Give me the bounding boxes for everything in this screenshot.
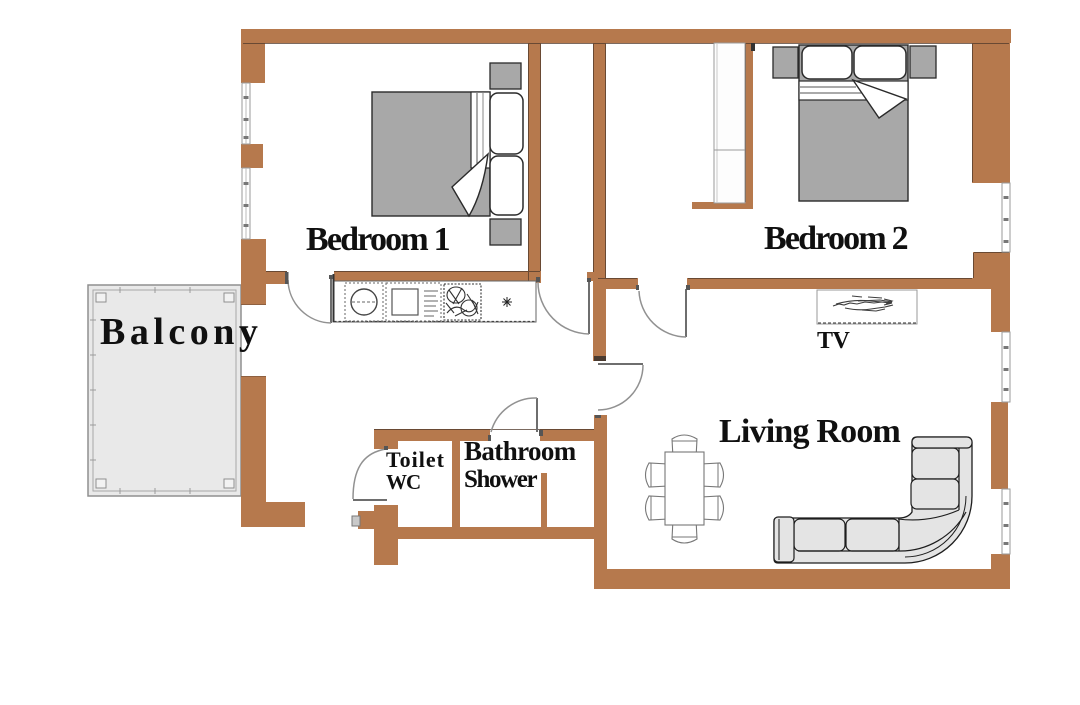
svg-text:Bathroom: Bathroom (464, 436, 577, 466)
svg-text:Bedroom 2: Bedroom 2 (764, 220, 908, 257)
svg-text:Toilet: Toilet (386, 447, 445, 472)
svg-text:WC: WC (386, 470, 420, 494)
svg-text:TV: TV (817, 328, 851, 354)
svg-text:Shower: Shower (464, 466, 537, 493)
svg-text:Balcony: Balcony (100, 311, 262, 353)
svg-text:Bedroom 1: Bedroom 1 (306, 221, 450, 258)
svg-text:Living Room: Living Room (719, 413, 901, 450)
